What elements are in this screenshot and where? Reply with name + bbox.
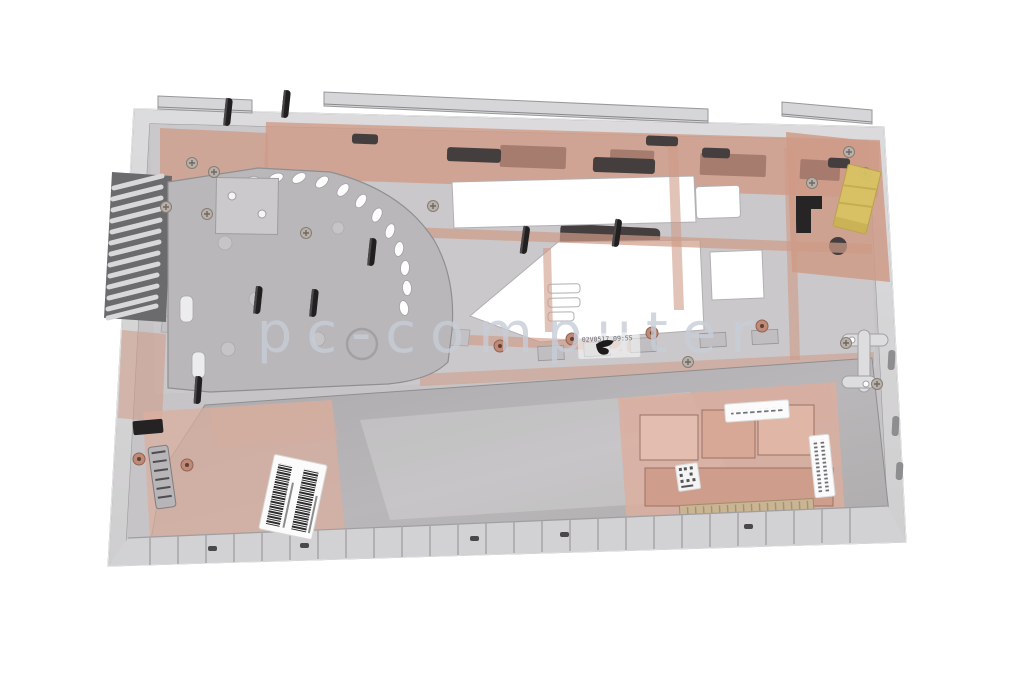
connector-black [132,419,163,436]
cutout-small-right [695,185,740,219]
cutout-rear-band [452,176,696,228]
date-stamp: 02V0517 09:55 [578,332,641,359]
hinge-plate-left [216,177,279,234]
left-vent-fins [104,172,172,322]
serial-label [724,400,789,422]
product-photo-laptop-bottom-case: pc-computer 02V0517 09:55 [0,0,1024,680]
shop-watermark: pc-computer [257,301,768,366]
cutout-center-right [710,250,764,300]
datamatrix-label [675,463,700,492]
copper-left-mid [118,330,166,422]
